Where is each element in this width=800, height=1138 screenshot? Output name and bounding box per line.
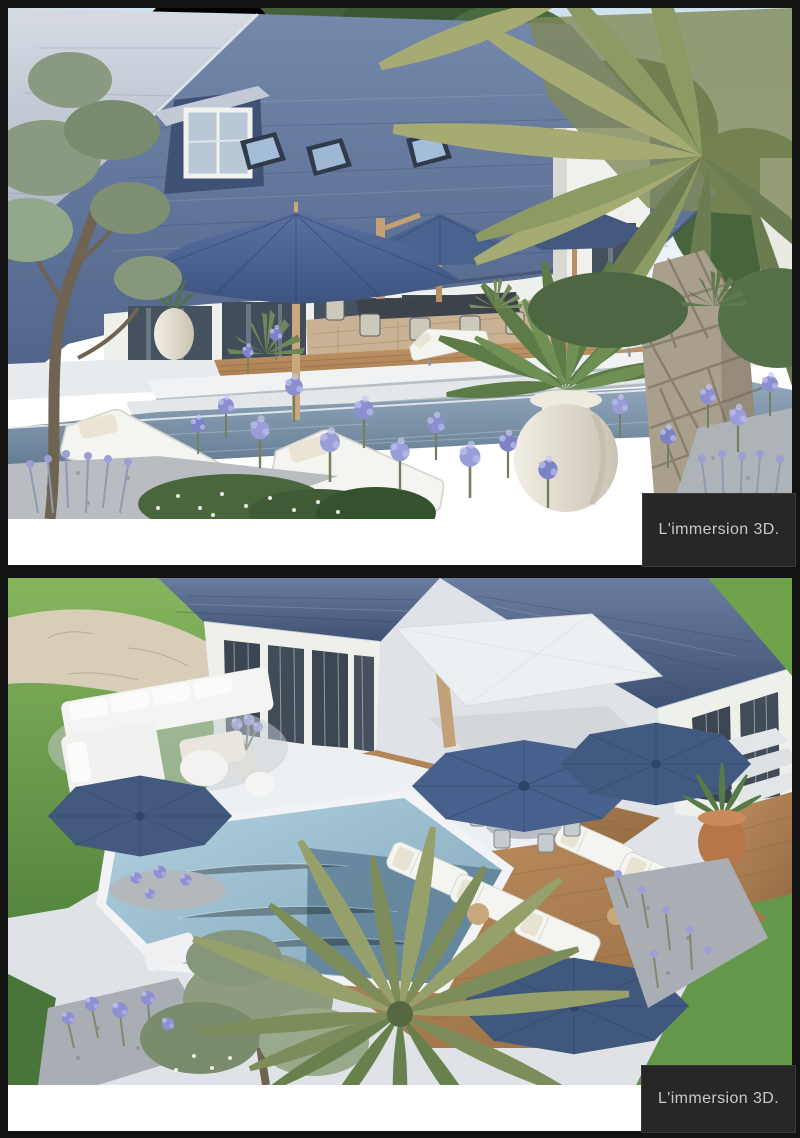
page-background: L'immersion 3D. xyxy=(0,0,800,1138)
render-figure-1: L'immersion 3D. xyxy=(8,8,792,565)
side-table xyxy=(467,903,489,925)
render-figure-2: L'immersion 3D. xyxy=(8,578,792,1131)
caption-box-2: L'immersion 3D. xyxy=(641,1065,796,1133)
render-image-1 xyxy=(8,8,792,519)
caption-text-1: L'immersion 3D. xyxy=(658,521,779,539)
render-image-2 xyxy=(8,578,792,1085)
caption-box-1: L'immersion 3D. xyxy=(642,493,796,567)
caption-text-2: L'immersion 3D. xyxy=(658,1090,779,1108)
